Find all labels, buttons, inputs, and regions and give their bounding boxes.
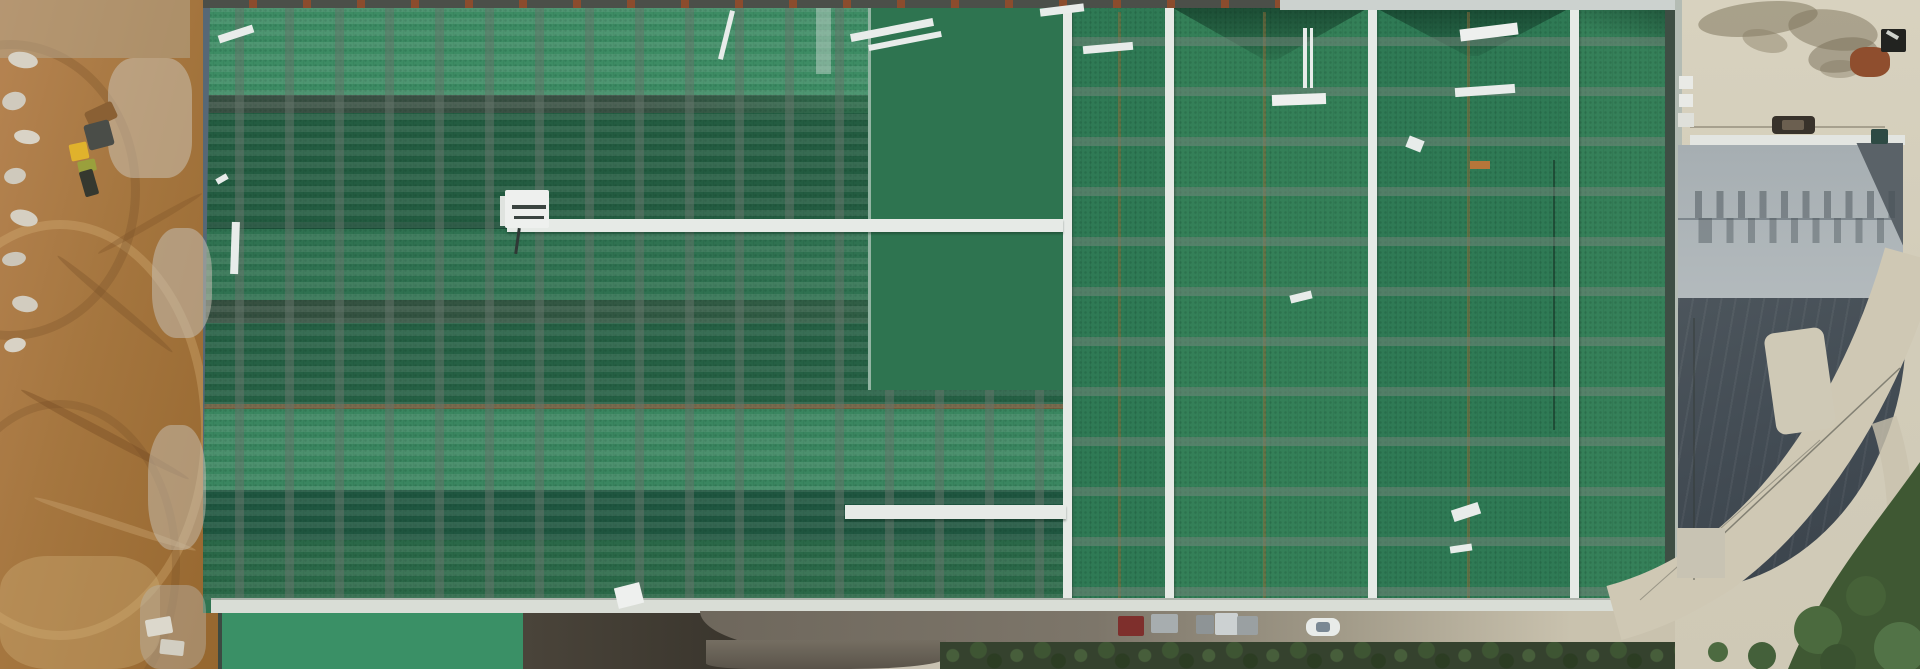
stone <box>1 250 27 267</box>
vehicle-white-truck <box>1215 613 1238 635</box>
vehicle-red-truck <box>1118 616 1144 636</box>
aerial-photo <box>0 0 1920 669</box>
roof-light-patch <box>1763 326 1837 435</box>
debris-tag <box>1451 502 1481 522</box>
teal-box <box>1871 129 1888 144</box>
debris-tag <box>1289 290 1312 303</box>
vehicle-gray-truck <box>1237 616 1258 635</box>
rubble-patch <box>108 58 192 178</box>
rooftop-equipment-bar <box>512 205 546 209</box>
debris-board-on-eave <box>614 582 644 609</box>
white-shed <box>1679 94 1693 107</box>
excavator-track <box>79 169 100 198</box>
debris-wash-strip <box>816 8 831 74</box>
white-shed <box>1678 113 1694 127</box>
debris-plank <box>1459 23 1518 42</box>
stone <box>7 50 39 71</box>
debris-plank <box>1310 28 1313 88</box>
debris-tag <box>1450 544 1473 554</box>
excavator-cab <box>68 141 89 161</box>
debris-plank <box>718 10 735 60</box>
stairs-pad <box>1677 528 1725 578</box>
rooftop-equipment-box <box>505 190 549 228</box>
object-layer <box>0 0 1920 669</box>
debris-plank <box>1455 84 1515 97</box>
debris-tag <box>1405 135 1424 152</box>
vehicle-gray-truck <box>1196 615 1214 634</box>
stone <box>3 166 27 186</box>
rubble-patch <box>148 425 206 550</box>
rubble-patch <box>152 228 212 338</box>
vehicle-dark-suv-roof <box>1782 120 1804 130</box>
debris-plank <box>215 173 228 184</box>
debris-plank <box>1083 42 1134 54</box>
debris-plank <box>1040 3 1085 16</box>
stone <box>13 128 41 145</box>
debris-plank <box>218 25 255 44</box>
stone <box>8 207 39 229</box>
debris-plank <box>230 222 240 274</box>
white-shed <box>1679 76 1693 89</box>
debris-plank <box>1272 93 1326 106</box>
vehicle-gray-truck <box>1151 614 1178 633</box>
stone <box>3 336 27 354</box>
concrete-block <box>159 639 184 656</box>
rooftop-equipment-bar <box>514 216 544 219</box>
debris-tag-orange <box>1470 161 1490 169</box>
vehicle-white-car-window <box>1316 622 1330 632</box>
dirt-light-patch <box>0 556 160 669</box>
stone <box>0 89 28 112</box>
rooftop-equipment-stick <box>514 228 521 254</box>
stone <box>11 294 39 314</box>
debris-plank <box>1303 28 1307 88</box>
